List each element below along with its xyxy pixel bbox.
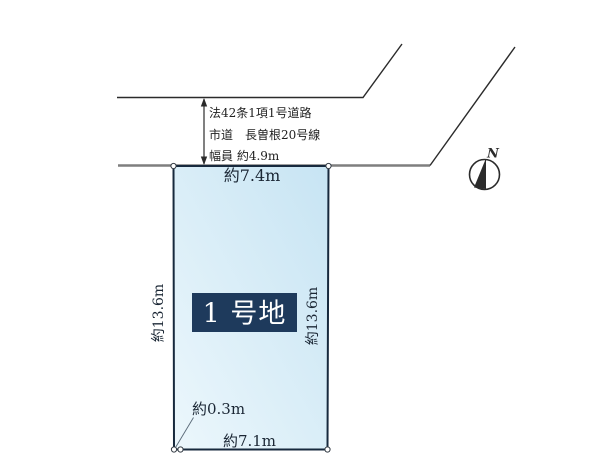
- dimension-bottom-width: 約7.1m: [223, 432, 276, 450]
- plot-name-label-text: 1 号地: [203, 299, 287, 330]
- plot-name-label: 1 号地: [192, 293, 297, 332]
- upper-road-boundary-line: [117, 44, 402, 98]
- dimension-right-depth: 約13.6m: [305, 287, 321, 345]
- measure-arrowhead-top-icon: [201, 98, 207, 107]
- north-compass-icon: N: [470, 147, 501, 190]
- vertex-marker-bottom-right: [325, 447, 330, 452]
- road-info-line-1: 法42条1項1号道路: [209, 105, 312, 120]
- vertex-marker-top-left: [171, 163, 176, 168]
- site-plan-diagram: 法42条1項1号道路 市道 長曽根20号線 幅員 約4.9m 約7.4m 約13…: [0, 0, 600, 472]
- compass-north-label: N: [486, 147, 500, 162]
- dimension-left-depth: 約13.6m: [151, 284, 167, 342]
- dimension-corner-offset: 約0.3m: [192, 400, 245, 418]
- measure-arrowhead-bottom-icon: [201, 157, 207, 166]
- dimension-top-width: 約7.4m: [224, 166, 281, 185]
- road-info-line-3: 幅員 約4.9m: [209, 148, 280, 163]
- road-info-block: 法42条1項1号道路 市道 長曽根20号線 幅員 約4.9m: [209, 105, 320, 163]
- road-width-measure-arrow: [201, 98, 207, 165]
- lower-road-diagonal-line: [430, 47, 515, 166]
- vertex-marker-top-right: [326, 163, 331, 168]
- site-plan-canvas: 法42条1項1号道路 市道 長曽根20号線 幅員 約4.9m 約7.4m 約13…: [0, 0, 600, 472]
- road-info-line-2: 市道 長曽根20号線: [209, 127, 320, 142]
- vertex-marker-bottom-left-inner: [178, 447, 183, 452]
